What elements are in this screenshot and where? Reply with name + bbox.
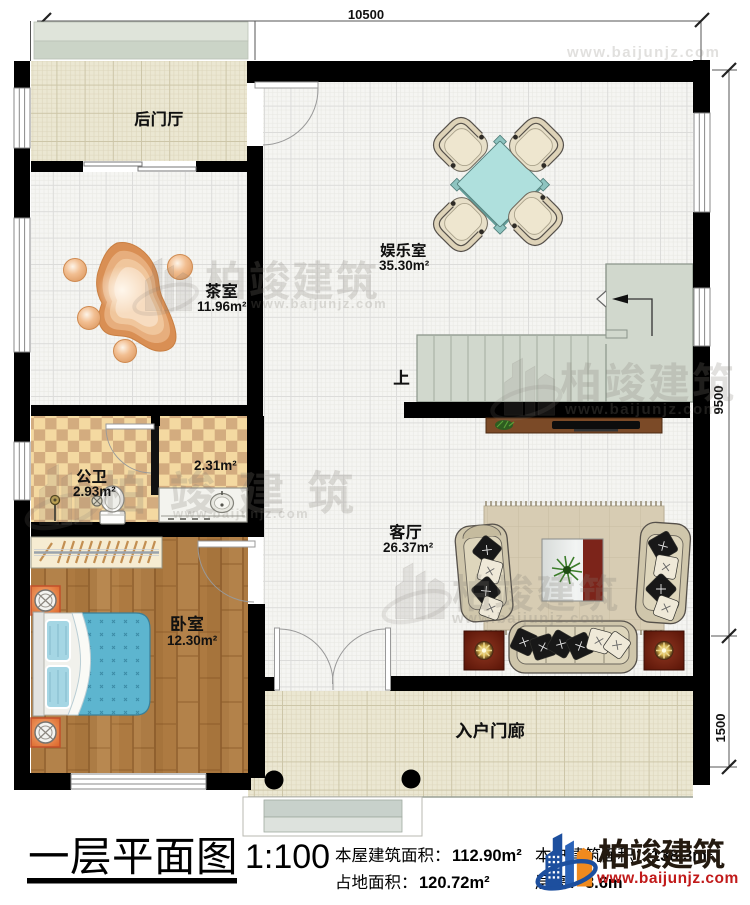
svg-text:12.30m²: 12.30m² [167, 633, 218, 648]
svg-text:www.baijunjz.com: www.baijunjz.com [566, 44, 720, 61]
svg-text:26.37m²: 26.37m² [383, 540, 434, 555]
svg-text:www.baijunjz.com: www.baijunjz.com [451, 610, 605, 627]
svg-text:2.31m²: 2.31m² [194, 458, 237, 473]
svg-text:1500: 1500 [713, 714, 728, 743]
svg-text:35.30m²: 35.30m² [379, 258, 430, 273]
svg-text:10500: 10500 [348, 7, 384, 22]
svg-text:1:100: 1:100 [245, 838, 330, 876]
svg-text:2.93m²: 2.93m² [73, 484, 116, 499]
svg-text:11.96m²: 11.96m² [197, 299, 247, 314]
svg-text:www.baijunjz.com: www.baijunjz.com [564, 401, 718, 418]
svg-text:www.baijunjz.com: www.baijunjz.com [172, 506, 309, 521]
svg-text:120.72m²: 120.72m² [419, 874, 490, 892]
svg-text:112.90m²: 112.90m² [452, 847, 522, 865]
svg-text:www.baijunjz.com: www.baijunjz.com [596, 870, 739, 887]
svg-text:www.baijunjz.com: www.baijunjz.com [250, 296, 387, 311]
